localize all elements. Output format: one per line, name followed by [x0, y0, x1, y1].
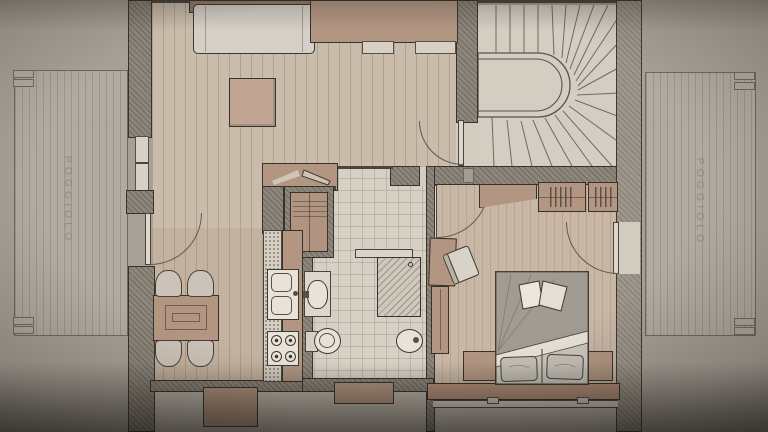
window-latch — [487, 397, 499, 404]
basin-tap — [303, 291, 309, 298]
bidet-tap — [413, 337, 419, 343]
balcony-door-opening — [618, 222, 640, 274]
living-stair-wall — [456, 0, 478, 123]
bedroom-cabinet — [431, 286, 449, 354]
window-latch — [577, 397, 589, 404]
washbasin — [307, 280, 328, 309]
double-bed — [495, 271, 589, 385]
balcony-left-rail-notch — [13, 79, 34, 87]
burner — [285, 351, 296, 362]
sink-basin — [271, 296, 292, 315]
balcony-right-rail-notch — [734, 82, 755, 90]
ground-below-bedroom — [434, 408, 618, 432]
dining-table — [153, 295, 219, 341]
balcony-left-label: POGGIOLO — [62, 156, 74, 245]
sideboard — [310, 0, 458, 43]
wardrobe-split — [539, 197, 585, 198]
dining-chair — [155, 270, 182, 297]
balcony-left-rail-notch — [13, 317, 34, 325]
balcony-right-label: POGGIOLO — [694, 158, 706, 247]
faucet — [293, 291, 298, 296]
cabinet-line — [440, 289, 441, 350]
wall-pier-marker — [463, 168, 474, 183]
nightstand — [463, 351, 496, 381]
winder-staircase — [478, 5, 620, 166]
double-sink — [267, 269, 299, 320]
dining-chair — [155, 340, 182, 367]
sofa-armrest-line — [205, 6, 206, 52]
balcony-right-rail-notch — [734, 72, 755, 80]
coffee-table — [229, 78, 276, 127]
bedroom-window-band — [433, 400, 618, 408]
left-wall-pier — [128, 266, 155, 432]
window — [135, 136, 149, 192]
pillow — [501, 356, 538, 381]
dining-chair — [187, 340, 214, 367]
balcony-left-rail-notch — [13, 70, 34, 78]
sofa — [193, 4, 315, 54]
left-wall-pier — [126, 190, 154, 214]
balcony-left-rail-notch — [13, 326, 34, 334]
wardrobe-sliding — [588, 182, 618, 212]
cooktop — [267, 331, 299, 366]
kitchen-wall-pier — [262, 186, 284, 234]
floor-plan-photo: POGGIOLO POGGIOLO — [0, 0, 768, 432]
bathroom-window-sill — [334, 382, 394, 404]
sofa-armrest-line — [302, 6, 303, 52]
burner — [271, 351, 282, 362]
nightstand — [587, 351, 613, 381]
right-exterior-wall — [616, 0, 642, 432]
bedroom-south-ledge — [427, 383, 620, 400]
shower-drain — [408, 262, 413, 267]
cabinet-drawer-lines — [293, 199, 327, 217]
burner — [271, 335, 282, 346]
table-runner — [172, 313, 200, 322]
kitchen-window-sill — [203, 387, 258, 427]
window-mullion — [135, 162, 149, 164]
stair-railing-outer — [478, 53, 570, 117]
wardrobe-split — [589, 197, 617, 198]
sink-basin — [271, 273, 292, 292]
balcony-right-rail-notch — [734, 318, 755, 326]
sideboard-front-panel — [362, 41, 394, 54]
toilet-bowl-inner — [319, 333, 335, 348]
wardrobe-sliding — [538, 182, 586, 212]
bidet — [396, 329, 423, 353]
pillow — [547, 354, 584, 379]
bathroom-wall-pier — [390, 166, 420, 186]
left-wall-pier — [128, 0, 152, 138]
sideboard-front-panel — [415, 41, 456, 54]
burner — [285, 335, 296, 346]
dining-chair — [187, 270, 214, 297]
shower — [377, 257, 421, 317]
balcony-right-rail-notch — [734, 327, 755, 335]
stairwell — [478, 5, 620, 166]
